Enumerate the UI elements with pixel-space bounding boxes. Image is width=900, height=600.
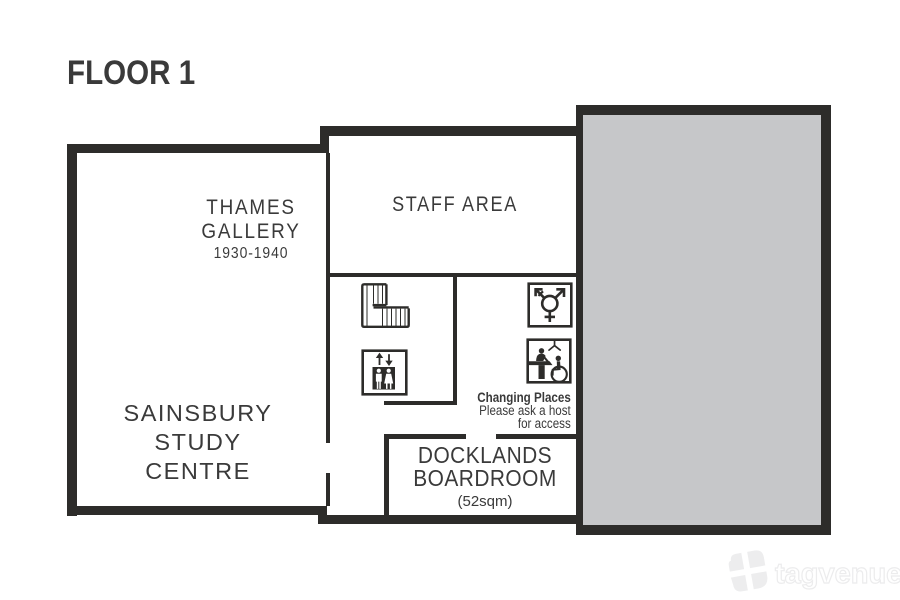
svg-text:tagvenue: tagvenue bbox=[775, 558, 900, 590]
